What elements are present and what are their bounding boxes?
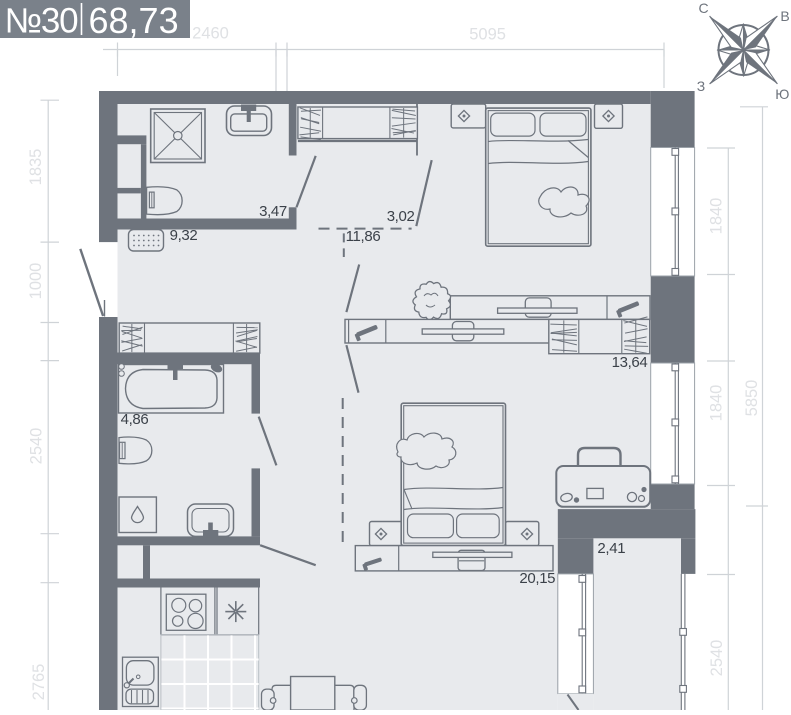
svg-text:13,64: 13,64	[612, 354, 648, 371]
svg-text:3,02: 3,02	[387, 208, 415, 225]
svg-text:9,32: 9,32	[170, 227, 198, 244]
svg-text:№30: №30	[5, 2, 79, 41]
svg-text:11,86: 11,86	[346, 228, 381, 245]
svg-text:1840: 1840	[708, 385, 726, 422]
svg-text:С: С	[698, 0, 708, 16]
svg-text:2,41: 2,41	[597, 540, 625, 557]
svg-text:1835: 1835	[27, 149, 45, 186]
svg-text:Ю: Ю	[775, 86, 789, 102]
svg-text:2460: 2460	[192, 25, 229, 43]
svg-text:68,73: 68,73	[89, 0, 179, 41]
svg-text:2540: 2540	[708, 640, 726, 677]
svg-text:20,15: 20,15	[519, 570, 555, 587]
svg-text:5850: 5850	[743, 380, 761, 417]
svg-text:2765: 2765	[30, 664, 48, 701]
svg-text:4,86: 4,86	[121, 411, 149, 428]
svg-text:5095: 5095	[469, 26, 506, 44]
svg-text:1840: 1840	[708, 198, 726, 235]
svg-text:З: З	[697, 78, 705, 94]
svg-text:В: В	[780, 8, 789, 24]
svg-text:1000: 1000	[27, 263, 45, 300]
svg-text:2540: 2540	[28, 428, 46, 465]
svg-text:3,47: 3,47	[259, 203, 287, 220]
